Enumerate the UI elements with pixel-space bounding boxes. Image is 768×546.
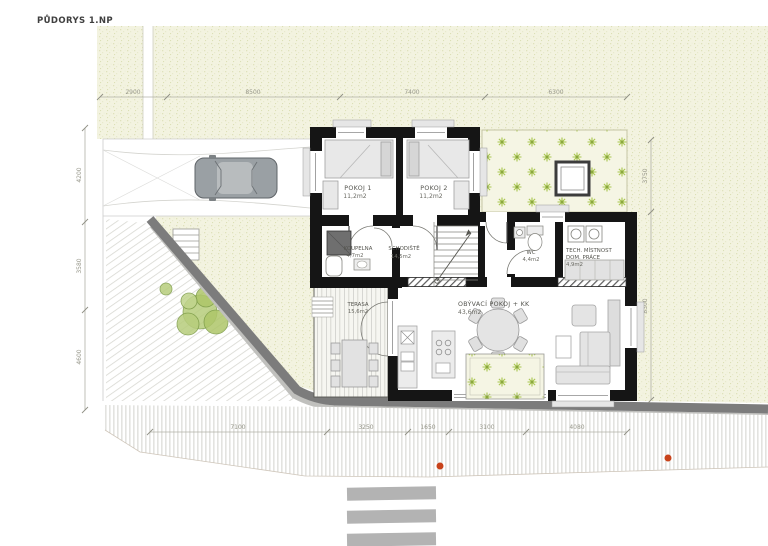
dim-label: 3750 bbox=[642, 168, 649, 183]
room-area: 4,9m2 bbox=[566, 262, 583, 268]
dimension-left: 4200 3580 4600 bbox=[76, 125, 88, 413]
terrace-garden-patch bbox=[466, 354, 544, 399]
room-area: 11,2m2 bbox=[419, 193, 443, 200]
room-area: 15,6m2 bbox=[348, 309, 368, 315]
dim-label: 7400 bbox=[404, 89, 419, 96]
dim-label: 7100 bbox=[230, 424, 245, 431]
sidewalk-hatch bbox=[105, 405, 768, 477]
floorplan-page: 2900 8500 7400 6300 4200 3580 4600 3750 … bbox=[0, 0, 768, 546]
utility-marker-dot bbox=[665, 455, 672, 462]
room-name: KOUPELNA bbox=[344, 246, 373, 252]
terrace-furniture bbox=[331, 340, 378, 387]
dim-label: 1650 bbox=[420, 424, 435, 431]
room-area: 4,4m2 bbox=[523, 257, 540, 263]
room-area: 11,2m2 bbox=[343, 193, 367, 200]
dim-label: 8500 bbox=[245, 89, 260, 96]
dim-label: 4080 bbox=[569, 424, 584, 431]
garden-patch bbox=[482, 130, 627, 212]
dim-label: 6300 bbox=[548, 89, 563, 96]
room-name: SCHODIŠTĚ bbox=[388, 244, 420, 252]
page-title: PŮDORYS 1.NP bbox=[37, 14, 113, 26]
room-area: 14,5m2 bbox=[391, 254, 411, 260]
room-label-terasa: TERASA 15,6m2 bbox=[346, 302, 368, 315]
dim-label: 4600 bbox=[76, 349, 83, 364]
room-area: 4,7m2 bbox=[347, 253, 364, 259]
site-plan-svg: 2900 8500 7400 6300 4200 3580 4600 3750 … bbox=[0, 0, 768, 546]
zebra-crossing bbox=[347, 486, 436, 546]
room-area: 43,6m2 bbox=[458, 309, 482, 316]
room-name: TECH. MÍSTNOST bbox=[565, 247, 613, 254]
room-name: WC bbox=[526, 250, 535, 256]
room-name: POKOJ 2 bbox=[420, 185, 447, 192]
dim-label: 2900 bbox=[125, 89, 140, 96]
utility-marker-dot bbox=[437, 463, 444, 470]
car bbox=[195, 155, 277, 201]
room-name: OBÝVACÍ POKOJ + KK bbox=[458, 299, 530, 308]
dim-label: 3580 bbox=[76, 258, 83, 273]
room-name: TERASA bbox=[346, 302, 368, 308]
dim-label: 3250 bbox=[358, 424, 373, 431]
dim-label: 3100 bbox=[479, 424, 494, 431]
room-name: POKOJ 1 bbox=[344, 185, 371, 192]
room-name: DOM. PRÁCE bbox=[566, 254, 601, 261]
dim-label: 4200 bbox=[76, 167, 83, 182]
